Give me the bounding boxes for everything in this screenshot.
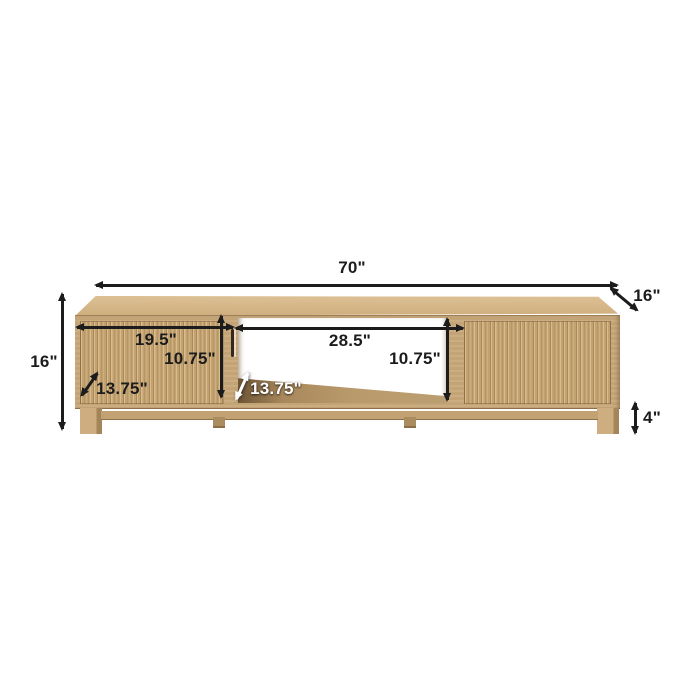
dim-overall-height-arrow <box>61 294 64 429</box>
tv-stand-top-surface <box>75 296 618 316</box>
dim-left-cabinet-height-arrow <box>220 316 223 397</box>
dim-overall-width-label: 70" <box>338 258 366 278</box>
right-leg <box>597 408 619 434</box>
dim-overall-depth-label: 16" <box>633 286 661 306</box>
dim-left-cabinet-depth-label: 13.75" <box>96 379 148 399</box>
right-fluted-door <box>464 321 611 404</box>
dim-center-shelf-width-arrow <box>236 327 463 330</box>
base-rail <box>101 411 598 420</box>
left-leg <box>80 408 102 434</box>
dim-center-shelf-height-arrow <box>446 319 449 400</box>
middle-foot-left <box>213 417 225 428</box>
middle-foot-right <box>404 417 416 428</box>
dim-leg-height-label: 4" <box>643 408 661 428</box>
dim-center-shelf-depth-label: 13.75" <box>250 379 302 399</box>
dim-leg-height-arrow <box>634 403 637 433</box>
dim-center-shelf-height-label: 10.75" <box>389 349 441 369</box>
dim-left-cabinet-height-label: 10.75" <box>164 349 216 369</box>
dim-overall-width-arrow <box>96 284 617 287</box>
dim-left-cabinet-width-arrow <box>77 326 233 329</box>
dim-left-cabinet-width-label: 19.5" <box>135 330 177 350</box>
dim-overall-height-label: 16" <box>30 352 58 372</box>
dimension-diagram: 70" 16" 16" 19.5" 10.75" 13.75" 28.5" 10… <box>0 0 700 700</box>
dim-center-shelf-width-label: 28.5" <box>329 331 371 351</box>
left-door-handle-groove <box>231 329 234 357</box>
